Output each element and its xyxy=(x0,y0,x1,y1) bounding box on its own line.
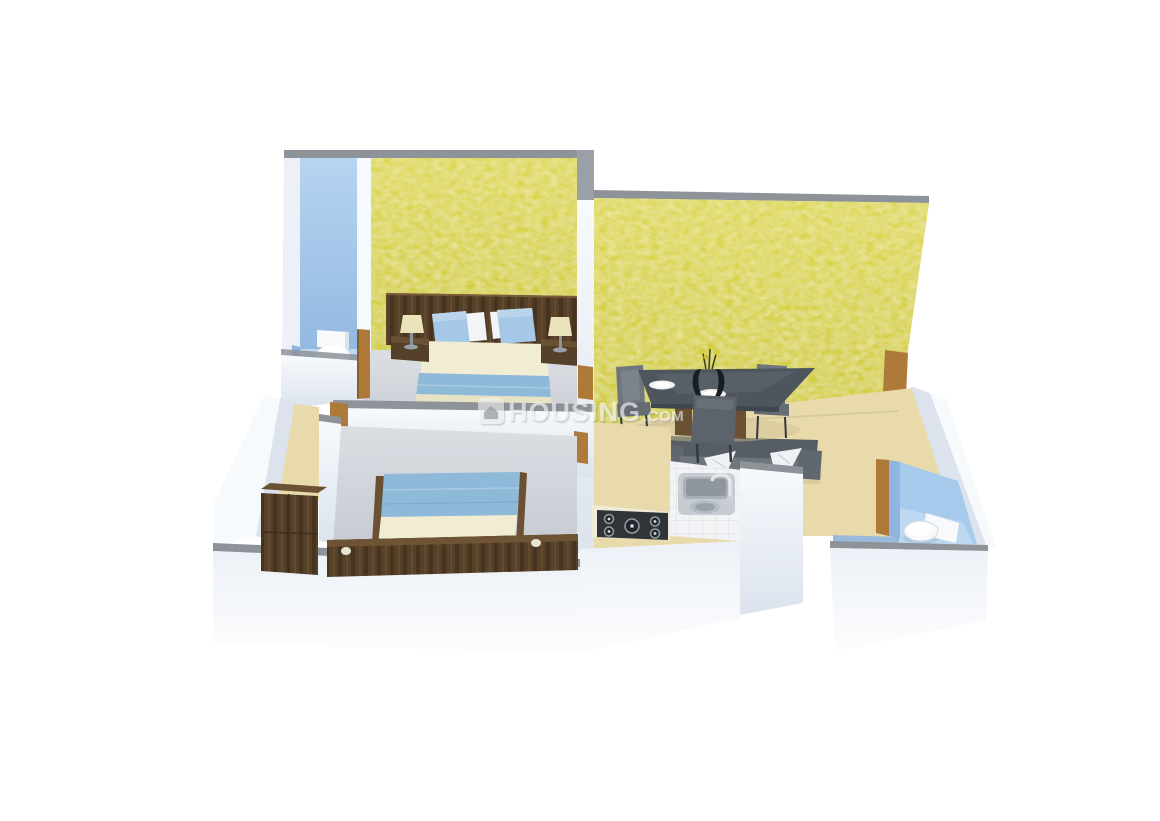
entrance-gap xyxy=(801,536,833,666)
watermark-suffix-text: .COM xyxy=(643,408,684,425)
bathroom2-door-trim xyxy=(876,459,889,536)
bathroom1-door-trim xyxy=(357,329,370,399)
bed-2 xyxy=(372,472,527,547)
wardrobe xyxy=(261,483,327,575)
living-door-trim-left xyxy=(578,365,593,400)
kitchen-front-wall xyxy=(580,541,740,653)
watermark-brand-text: HOUSING xyxy=(508,397,641,427)
bedroom-2 xyxy=(333,426,577,552)
housing-logo-icon xyxy=(478,398,504,424)
kitchen-sink-counter xyxy=(670,461,741,541)
floor-plan-render: HOUSING .COM xyxy=(0,0,1160,821)
entry-passage-wall xyxy=(740,461,803,615)
front-wall-right xyxy=(830,541,988,652)
bedroom1-east-wall xyxy=(577,200,594,560)
floor-plan-page: HOUSING .COM xyxy=(0,0,1160,821)
bed2-footboard xyxy=(327,534,578,577)
